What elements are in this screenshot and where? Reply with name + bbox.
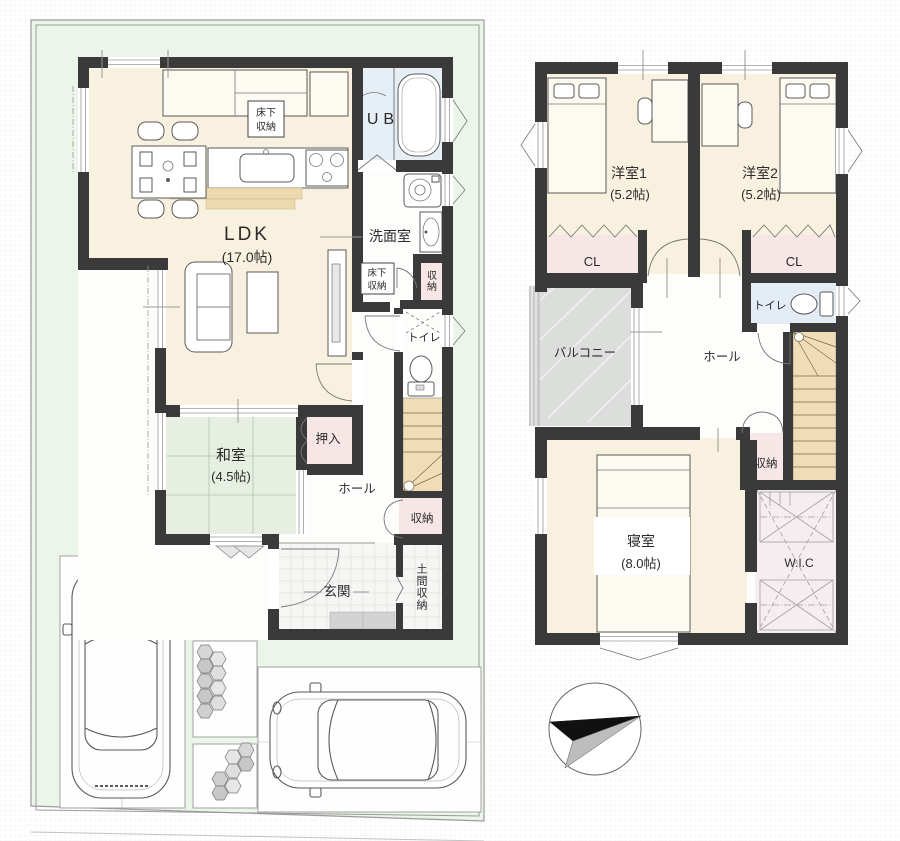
label-doma: 土間収納 [415, 563, 428, 611]
washing-machine-icon [404, 174, 441, 207]
entrance-step [330, 612, 395, 629]
label-shuno-mid: 収納 [425, 270, 437, 292]
label-shinshitsu: 寝室 [627, 533, 655, 549]
stairs-1f-icon [403, 398, 445, 493]
label-ldk: LDK [224, 224, 270, 245]
sliding-door [296, 470, 307, 534]
label-yoshitsu1: 洋室1 [611, 165, 647, 181]
label-hall1f: ホール [338, 482, 376, 496]
label-washitsu-size: (4.5帖) [211, 469, 251, 484]
bed-icon [548, 78, 606, 193]
sliding-door [180, 405, 298, 417]
car-icon [270, 683, 466, 797]
floorplan-canvas: LDK (17.0帖) 床下 収納 UB 洗面室 床下 収納 収納 トイレ 押入… [0, 0, 900, 841]
floor2-plan: 洋室1 (5.2帖) 洋室2 (5.2帖) CL CL バルコニー ホール トイ… [521, 50, 862, 660]
compass-icon [549, 683, 641, 775]
label-yukashita2: 収納 [367, 280, 386, 292]
fridge-icon [310, 72, 348, 116]
label-cl1: CL [584, 254, 601, 269]
label-yukashita2: 床下 [367, 267, 386, 279]
window-flag-icon [521, 124, 535, 166]
label-shinshitsu-size: (8.0帖) [621, 556, 661, 571]
road-edge-line [31, 832, 484, 841]
label-cl2: CL [786, 254, 803, 269]
label-wic: W.I.C [784, 556, 814, 570]
tv-board-icon [328, 250, 346, 356]
label-yukashita1: 床下 [256, 106, 276, 119]
toilet-icon [791, 292, 833, 316]
label-shuno1f: 収納 [411, 512, 434, 525]
label-toilet1f: トイレ [408, 332, 441, 344]
balcony-window [631, 308, 643, 405]
table-icon [247, 272, 278, 333]
label-toilet2f: トイレ [754, 300, 787, 312]
label-ub: UB [367, 111, 399, 128]
label-genkan: 玄関 [324, 583, 351, 599]
label-washitsu: 和室 [216, 447, 246, 464]
sink-icon [240, 154, 294, 182]
label-shuno2f: 収納 [755, 457, 778, 470]
label-hall2f: ホール [703, 350, 741, 364]
label-yoshitsu2: 洋室2 [742, 165, 778, 181]
floorplan-svg: LDK (17.0帖) 床下 収納 UB 洗面室 床下 収納 収納 トイレ 押入… [0, 0, 900, 841]
label-oshiire: 押入 [315, 432, 341, 446]
label-yoshitsu1-size: (5.2帖) [610, 187, 650, 202]
vanity-icon [420, 212, 442, 252]
label-yoshitsu2-size: (5.2帖) [741, 187, 781, 202]
label-ldk-size: (17.0帖) [222, 249, 273, 265]
stairs-2f-icon [793, 330, 836, 482]
bed-icon [780, 78, 836, 193]
window-flag-icon [848, 288, 860, 314]
sofa-icon [185, 262, 232, 352]
label-yukashita1: 収納 [256, 120, 276, 133]
window-flag-icon [848, 130, 862, 172]
floor1-plan: LDK (17.0帖) 床下 収納 UB 洗面室 床下 収納 収納 トイレ 押入… [73, 50, 467, 640]
label-balcony: バルコニー [554, 346, 616, 360]
label-senmen: 洗面室 [369, 228, 411, 244]
